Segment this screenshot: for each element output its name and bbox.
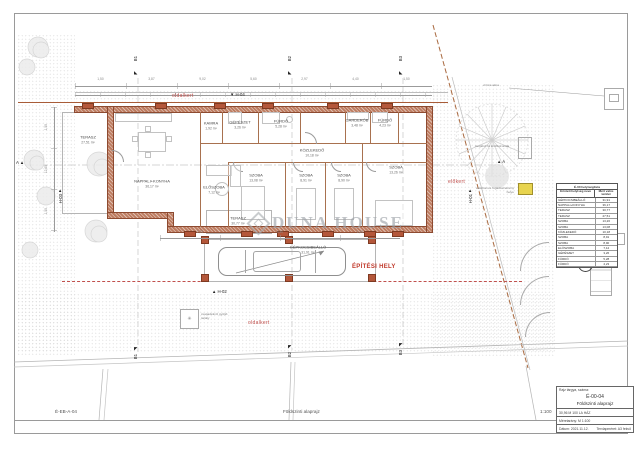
annotation-tree: meglévő fa lombkoronája: [468, 145, 516, 149]
title-block-project: 30,96 M 100 LA HÁZ: [557, 409, 633, 417]
footer-code: É-EB-A-04: [55, 409, 77, 414]
wall-west: [108, 107, 113, 218]
utility-box: [518, 137, 532, 159]
dim-ticks-top: [75, 83, 432, 89]
marker-a-left: A ▲: [16, 160, 24, 165]
drawing-sheet: { "sheet": { "footer": { "code": "É-EB-A…: [0, 0, 640, 451]
dimension-value: 12,65: [44, 165, 48, 173]
title-block-date: Dátum: 2021.11.12. Tervlapméret: A3 fekv…: [557, 425, 633, 432]
dim-ticks-bottom: [160, 235, 400, 241]
partition: [398, 112, 399, 143]
legend-text: csapadékvíz gyűjtő tartály: [201, 313, 235, 321]
room-label-kozlekedo: KÖZLEKEDŐ10,18 m²: [300, 149, 324, 158]
room-label-gepkocsibeallo: GÉPKOCSIBEÁLLÓ31,91 m²: [290, 246, 326, 255]
dim-ticks-top2: [75, 93, 432, 97]
window-tag: [328, 104, 338, 108]
dim-values-top: 1,503,879,025,602,974,401,50: [75, 77, 432, 81]
partition: [228, 162, 427, 163]
sheet-number: É-00-04: [559, 394, 631, 400]
marker-b3-top-tri: ◣: [399, 70, 402, 76]
window-tag: [382, 104, 392, 108]
room-label-terasz-south: TERASZ30,77 m²: [230, 217, 246, 226]
chair: [132, 136, 138, 142]
car-top-view: [218, 247, 346, 276]
marker-a-right: ▲ A: [497, 159, 505, 164]
partition: [300, 112, 301, 143]
marker-b3-bottom-tri: ◤: [399, 342, 402, 348]
duna-house-logo-icon: [246, 211, 270, 235]
legend-box: ✳: [180, 309, 199, 329]
annotation-water-meter: vízóra akna: [483, 84, 499, 88]
room-label-furdo2: FÜRDŐ4,23 m²: [378, 119, 392, 128]
watermark-text: DUNA HOUSE: [272, 213, 404, 233]
marker-b2-bottom-tri: ◤: [288, 344, 291, 350]
room-label-kamra: KAMRA1,92 m²: [204, 122, 218, 131]
terrace-west-outline: [62, 112, 110, 214]
label-oldalkert-top: oldalkert: [172, 93, 194, 99]
dimension-value: 1,50: [44, 124, 48, 130]
dining-table: [138, 132, 166, 152]
room-label-furdo1: FÜRDŐ5,28 m²: [274, 120, 288, 129]
sheet-title: Földszinti alaprajz: [559, 401, 631, 406]
room-label-nappali: NAPPALI+KONYHA36,17 m²: [134, 180, 170, 189]
marker-h04: ▼ H-04: [230, 92, 245, 97]
annotation-electric: elektromos fogadószekrényhelye: [462, 187, 514, 195]
chair: [145, 152, 151, 158]
marker-b1-top: B1: [133, 56, 138, 62]
water-meter-box: [604, 88, 624, 110]
label-elokert: előkert: [448, 179, 465, 185]
room-label-terasz-west: TERASZ27,51 m²: [80, 136, 96, 145]
room-table-header: Érintett helyiség neveMért valós terület: [557, 190, 617, 198]
carport-column: [369, 275, 375, 281]
marker-b2-top: B2: [287, 56, 292, 62]
dim-values-left: 1,5012,651,50: [44, 107, 48, 232]
marker-h02: ▲ H-02: [212, 289, 227, 294]
room-label-szoba3: SZOBA8,90 m²: [337, 174, 351, 183]
dimension-value: 2,23: [197, 230, 203, 234]
title-block: Rajz tárgya, száma: É-00-04 Földszinti a…: [556, 386, 634, 433]
room-label-garderob: GARDERÓB3,48 m²: [346, 119, 369, 128]
kitchen-counter: [115, 113, 172, 122]
room-table-rows: GÉPKOCSIBEÁLLÓ31,91NAPPALI+KONYHA36,17TE…: [557, 198, 617, 267]
footer-scale: 1:100: [540, 409, 552, 414]
room-label-szoba2: SZOBA8,91 m²: [299, 174, 313, 183]
title-block-label: Rajz tárgya, száma:: [559, 388, 589, 392]
chair: [145, 126, 151, 132]
partition: [222, 112, 223, 143]
marker-b1-bottom: B1: [133, 354, 138, 360]
brand-watermark: DUNA HOUSE: [250, 213, 404, 233]
carport-column: [202, 275, 208, 281]
room-label-szoba1: SZOBA13,08 m²: [249, 174, 263, 183]
dimension-value: 1,50: [403, 77, 409, 81]
marker-b2-top-tri: ◣: [288, 70, 291, 76]
electric-box: [518, 183, 533, 195]
marker-b3-bottom: B3: [398, 350, 403, 356]
footer-title: Földszinti alaprajz: [283, 409, 320, 414]
room-label-gepeszet: GÉPÉSZET3,26 m²: [229, 121, 250, 130]
marker-b2-bottom: B2: [287, 352, 292, 358]
marker-b3-top: B3: [398, 56, 403, 62]
dimension-value: 1,50: [44, 208, 48, 214]
sofa: [206, 165, 232, 176]
dimension-value: 9,02: [199, 77, 205, 81]
partition: [200, 112, 201, 227]
dimension-value: 5,60: [250, 77, 256, 81]
room-label-eloszoba: ELŐSZOBA7,12 m²: [203, 186, 225, 195]
room-table-row: FÜRDŐ4,23: [557, 262, 617, 267]
room-area-table: É-00 helyiséglista Érintett helyiség nev…: [556, 183, 618, 268]
label-epitesi-hely: ÉPÍTÉSI HELY: [352, 264, 396, 270]
window-tag: [215, 104, 225, 108]
marker-h03: ▲H-03: [58, 188, 63, 204]
dimension-value: 2,97: [301, 77, 307, 81]
partition: [258, 112, 259, 143]
marker-b1-top-tri: ◣: [134, 70, 137, 76]
dimension-value: 3,87: [148, 77, 154, 81]
dim-ticks-left: [51, 107, 57, 232]
chair: [166, 136, 172, 142]
marker-b1-bottom-tri: ◤: [134, 346, 137, 352]
wardrobe: [230, 165, 241, 187]
wall-east: [427, 107, 432, 232]
window-tag: [156, 104, 166, 108]
window-tag: [83, 104, 93, 108]
title-block-scale: Méretarány: M 1:100: [557, 417, 633, 425]
dimension-value: 1,50: [97, 77, 103, 81]
label-oldalkert-bottom: oldalkert: [248, 320, 270, 326]
room-label-szoba4: SZOBA13,26 m²: [389, 166, 403, 175]
wall-south-west: [108, 213, 170, 218]
dimension-value: 4,40: [352, 77, 358, 81]
window-tag: [263, 104, 273, 108]
